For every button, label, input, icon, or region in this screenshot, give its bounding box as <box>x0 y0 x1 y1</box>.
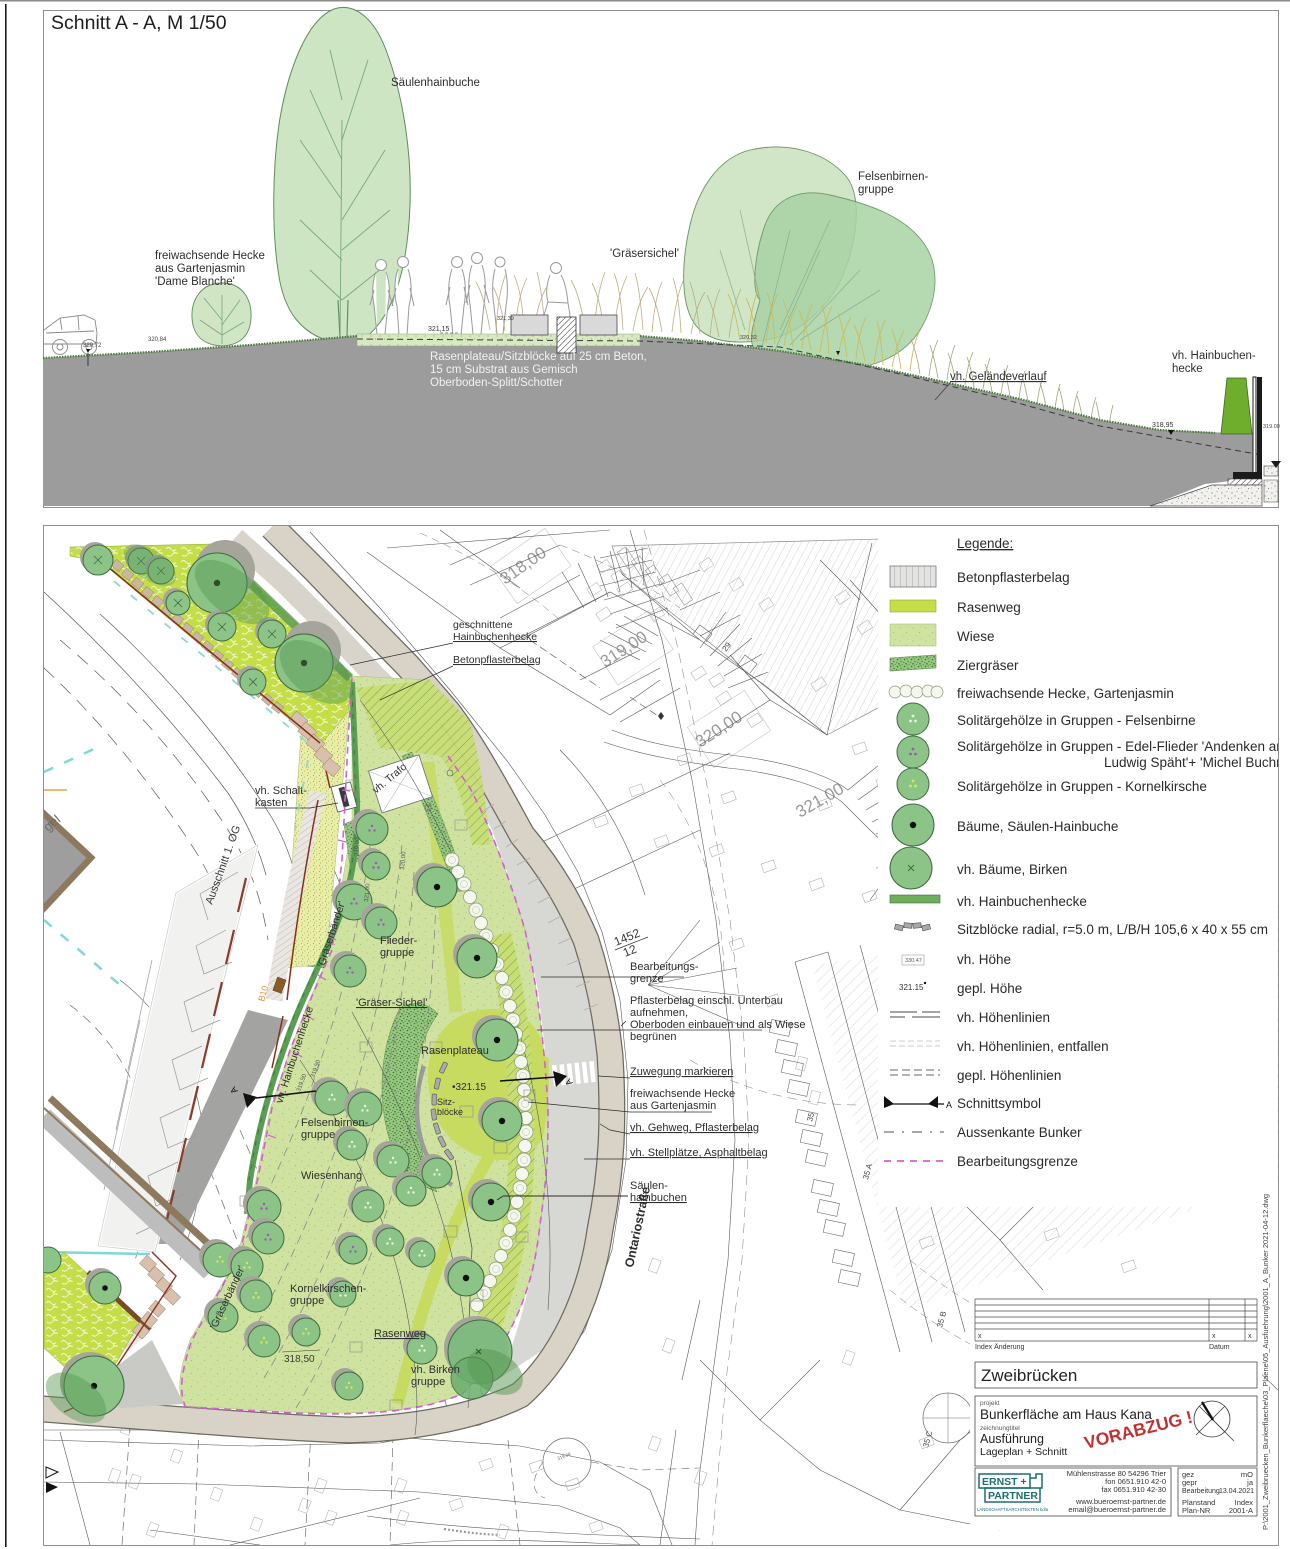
svg-text:freiwachsende Hecke, Gartenjas: freiwachsende Hecke, Gartenjasmin <box>957 686 1174 701</box>
svg-text:gepl. Höhe: gepl. Höhe <box>957 981 1022 996</box>
svg-text:318,95: 318,95 <box>1152 422 1174 429</box>
svg-text:Ziergräser: Ziergräser <box>957 658 1019 673</box>
svg-text:Solitärgehölze in Gruppen - Fe: Solitärgehölze in Gruppen - Felsenbirne <box>957 713 1196 728</box>
svg-text:hecke: hecke <box>1172 363 1203 375</box>
svg-text:gruppe: gruppe <box>380 947 414 959</box>
svg-text:320,72: 320,72 <box>83 343 102 349</box>
svg-text:x: x <box>978 1333 982 1340</box>
svg-text:Solitärgehölze in Gruppen - Ed: Solitärgehölze in Gruppen - Edel-Flieder… <box>957 739 1284 754</box>
svg-text:15 cm Substrat aus Gemisch: 15 cm Substrat aus Gemisch <box>430 364 578 376</box>
svg-text:319.00: 319.00 <box>1263 424 1280 430</box>
svg-text:blöcke: blöcke <box>437 1107 463 1117</box>
svg-text:LANDSCHAFTSARCHITEKTEN bdla: LANDSCHAFTSARCHITEKTEN bdla <box>977 1507 1049 1512</box>
svg-text:Felsenbirnen-: Felsenbirnen- <box>858 171 928 183</box>
svg-text:Sitzblöcke radial, r=5.0 m, L/: Sitzblöcke radial, r=5.0 m, L/B/H 105,6 … <box>957 922 1268 937</box>
svg-text:Zweibrücken: Zweibrücken <box>981 1366 1077 1385</box>
svg-text:x: x <box>1248 1333 1252 1340</box>
svg-text:'Gräser-Sichel': 'Gräser-Sichel' <box>356 997 427 1009</box>
svg-text:Plan-NR: Plan-NR <box>1182 1506 1211 1515</box>
svg-text:ja: ja <box>1246 1478 1254 1487</box>
svg-text:Lageplan + Schnitt: Lageplan + Schnitt <box>980 1446 1067 1458</box>
svg-text:aus Gartenjasmin: aus Gartenjasmin <box>630 1100 716 1112</box>
svg-text:Ausführung: Ausführung <box>980 1432 1044 1446</box>
svg-text:gruppe: gruppe <box>290 1295 324 1307</box>
svg-text:Pflasterbelag einschl. Unterba: Pflasterbelag einschl. Unterbau <box>630 995 783 1007</box>
svg-text:Rasenplateau/Sitzblöcke auf 25: Rasenplateau/Sitzblöcke auf 25 cm Beton, <box>430 351 647 363</box>
svg-text:aus Gartenjasmin: aus Gartenjasmin <box>155 263 245 275</box>
svg-text:Wiese: Wiese <box>957 629 995 644</box>
svg-text:Flieder-: Flieder- <box>380 935 418 947</box>
svg-text:freiwachsende Hecke: freiwachsende Hecke <box>155 250 265 262</box>
svg-text:gruppe: gruppe <box>301 1129 335 1141</box>
svg-text:321.15: 321.15 <box>899 983 924 992</box>
svg-text:Ludwig Späht'+ 'Michel Buchner: Ludwig Späht'+ 'Michel Buchner' <box>1104 755 1290 770</box>
svg-text:zeichnungtitel: zeichnungtitel <box>980 1425 1020 1432</box>
svg-text:vh. Hainbuchen-: vh. Hainbuchen- <box>1172 350 1256 362</box>
svg-text:vh. Birken: vh. Birken <box>411 1364 460 1376</box>
svg-text:gepl. Höhenlinien: gepl. Höhenlinien <box>957 1068 1061 1083</box>
svg-text:Rasenplateau: Rasenplateau <box>421 1045 489 1057</box>
svg-text:A: A <box>946 1100 952 1110</box>
svg-text:Betonpflasterbelag: Betonpflasterbelag <box>453 654 541 666</box>
svg-text:gepr: gepr <box>1182 1478 1198 1487</box>
svg-text:projekt: projekt <box>980 1400 1000 1407</box>
svg-text:Felsenbirnen-: Felsenbirnen- <box>301 1117 369 1129</box>
svg-text:Kornelkirschen-: Kornelkirschen- <box>290 1283 367 1295</box>
svg-text:ERNST +: ERNST + <box>982 1476 1027 1488</box>
svg-text:vh. Stellplätze, Asphaltbelag: vh. Stellplätze, Asphaltbelag <box>630 1147 768 1159</box>
svg-text:Schnittsymbol: Schnittsymbol <box>957 1096 1041 1111</box>
svg-text:gruppe: gruppe <box>411 1376 445 1388</box>
svg-text:kasten: kasten <box>255 797 287 809</box>
svg-text:Schnitt A - A, M 1/50: Schnitt A - A, M 1/50 <box>51 12 227 34</box>
svg-text:318,50: 318,50 <box>284 1354 315 1365</box>
svg-text:vh. Schalt-: vh. Schalt- <box>255 785 307 797</box>
svg-text:Oberboden-Splitt/Schotter: Oberboden-Splitt/Schotter <box>430 377 563 389</box>
svg-text:aufnehmen,: aufnehmen, <box>630 1007 688 1019</box>
svg-text:grenze: grenze <box>630 973 664 985</box>
svg-text:Datum: Datum <box>1209 1344 1230 1351</box>
svg-text:Bearbeitung: Bearbeitung <box>1182 1488 1220 1495</box>
svg-text:321,39: 321,39 <box>497 316 514 322</box>
svg-text:Rasenweg: Rasenweg <box>957 600 1021 615</box>
svg-text:Rasenweg: Rasenweg <box>374 1328 426 1340</box>
svg-text:•321.15: •321.15 <box>452 1082 487 1093</box>
svg-text:Solitärgehölze in Gruppen - Ko: Solitärgehölze in Gruppen - Kornelkirsch… <box>957 779 1207 794</box>
svg-text:321,15: 321,15 <box>428 326 450 333</box>
svg-text:vh. Gehweg, Pflasterbelag: vh. Gehweg, Pflasterbelag <box>630 1122 759 1134</box>
svg-text:vh. Höhenlinien: vh. Höhenlinien <box>957 1010 1050 1025</box>
svg-text:vh. Bäume, Birken: vh. Bäume, Birken <box>957 862 1067 877</box>
svg-text:Bearbeitungs-: Bearbeitungs- <box>630 961 699 973</box>
svg-text:Bearbeitungsgrenze: Bearbeitungsgrenze <box>957 1154 1078 1169</box>
svg-text:2001-A: 2001-A <box>1229 1506 1253 1515</box>
svg-text:freiwachsende Hecke: freiwachsende Hecke <box>630 1088 735 1100</box>
svg-text:Aussenkante Bunker: Aussenkante Bunker <box>957 1125 1082 1140</box>
svg-text:Wiesenhang: Wiesenhang <box>301 1170 362 1182</box>
svg-text:Bunkerfläche am Haus Kana: Bunkerfläche am Haus Kana <box>980 1407 1152 1422</box>
svg-text:P:\2001_Zweibruecken_Bunkerfla: P:\2001_Zweibruecken_Bunkerflaeche\03_Pl… <box>1261 1194 1270 1530</box>
svg-text:PARTNER: PARTNER <box>988 1490 1038 1502</box>
svg-text:vh. Höhenlinien, entfallen: vh. Höhenlinien, entfallen <box>957 1039 1109 1054</box>
svg-text:Bäume, Säulen-Hainbuche: Bäume, Säulen-Hainbuche <box>957 819 1118 834</box>
svg-text:Hainbuchenhecke: Hainbuchenhecke <box>453 631 537 643</box>
svg-text:13.04.2021: 13.04.2021 <box>1219 1488 1254 1495</box>
svg-text:Oberboden einbauen und als Wie: Oberboden einbauen und als Wiese <box>630 1019 806 1031</box>
svg-text:Sitz-: Sitz- <box>437 1097 455 1107</box>
svg-text:'Dame Blanche': 'Dame Blanche' <box>155 276 235 288</box>
svg-text:Betonpflasterbelag: Betonpflasterbelag <box>957 570 1070 585</box>
svg-text:email@bueroernst-partner.de: email@bueroernst-partner.de <box>1068 1505 1166 1514</box>
svg-text:Legende:: Legende: <box>957 536 1013 551</box>
svg-text:geschnittene: geschnittene <box>453 619 513 631</box>
svg-text:vh. Hainbuchenhecke: vh. Hainbuchenhecke <box>957 894 1087 909</box>
svg-text:'Gräsersichel': 'Gräsersichel' <box>610 248 679 260</box>
svg-text:Säulenhainbuche: Säulenhainbuche <box>391 77 480 89</box>
svg-text:gruppe: gruppe <box>858 184 894 196</box>
svg-text:vh. Höhe: vh. Höhe <box>957 952 1011 967</box>
svg-text:Zuwegung markieren: Zuwegung markieren <box>630 1066 733 1078</box>
svg-text:330.47: 330.47 <box>905 958 922 964</box>
svg-text:fax 0651.910 42-30: fax 0651.910 42-30 <box>1101 1485 1166 1494</box>
svg-text:320,84: 320,84 <box>148 337 167 343</box>
svg-text:x: x <box>1212 1333 1216 1340</box>
svg-text:begrünen: begrünen <box>630 1031 677 1043</box>
svg-text:vh. Geländeverlauf: vh. Geländeverlauf <box>950 371 1047 383</box>
svg-text:320,32: 320,32 <box>740 335 757 341</box>
svg-text:Index Änderung: Index Änderung <box>975 1343 1025 1351</box>
